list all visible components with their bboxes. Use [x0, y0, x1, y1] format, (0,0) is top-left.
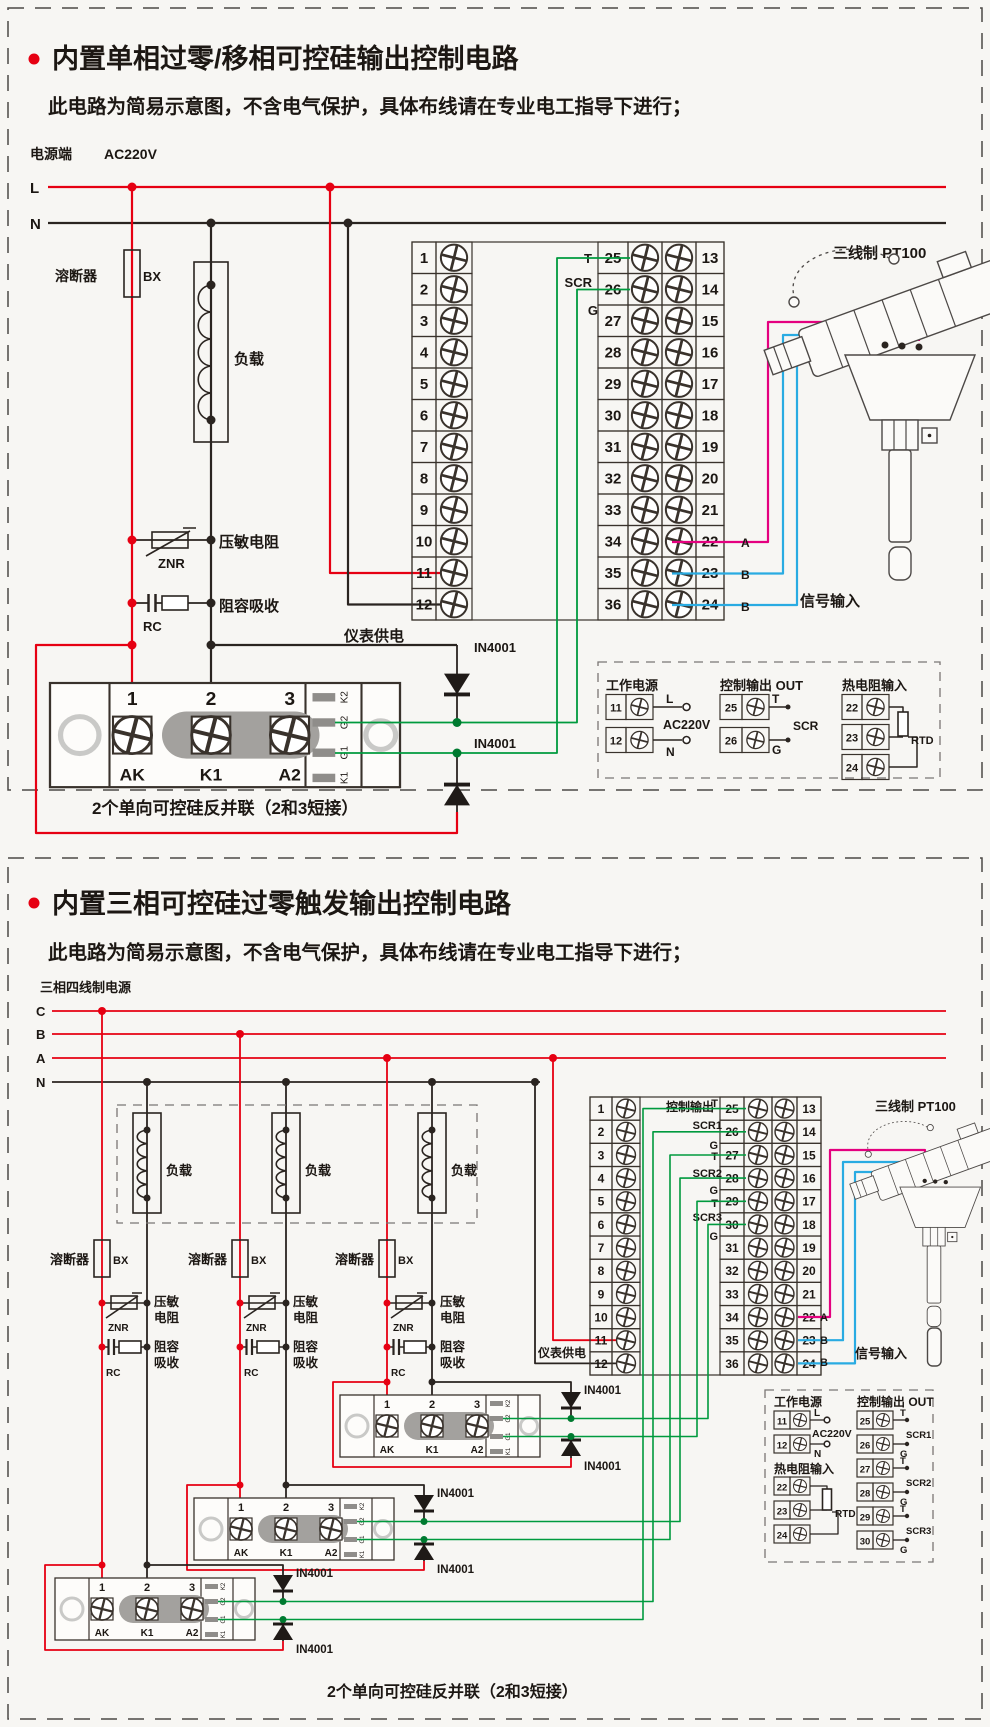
label-g: G [709, 1185, 718, 1197]
label-t: T [711, 1198, 718, 1210]
terminal-number: 13 [702, 250, 719, 267]
legend-scr3: SCR3 [906, 1526, 931, 1537]
signal-input-label: 信号输入 [800, 592, 860, 610]
terminal-number: 31 [725, 1241, 739, 1255]
legend-l: L [814, 1408, 820, 1419]
terminal-row: 5 [590, 1190, 640, 1213]
terminal-row: 15 [696, 305, 724, 337]
signal-b-label: B [741, 568, 750, 582]
legend-voltage: AC220V [812, 1428, 852, 1440]
signal-b-label: B [741, 600, 750, 614]
terminal-row: 4 [412, 337, 472, 369]
legend-box-2: 工作电源 11 12 L AC220V N 热电阻输入 22 23 24 RTD… [765, 1390, 934, 1562]
terminal-number: 5 [420, 376, 428, 393]
terminal-number: 19 [702, 439, 719, 456]
legend-terminal: 24 [846, 763, 859, 775]
legend-terminal: 27 [860, 1465, 871, 1476]
terminal-row: 9 [412, 494, 472, 526]
fuse-3: 溶断器 BX [335, 1240, 414, 1277]
terminal-number: 9 [598, 1287, 605, 1301]
terminal-row: 8 [590, 1259, 640, 1282]
legend-terminal: 11 [777, 1417, 788, 1428]
pt100-label: 三线制 PT100 [875, 1099, 956, 1114]
terminal-number: 20 [702, 471, 719, 488]
varistor-label: 压敏电阻 [219, 533, 279, 551]
ctrl-out-label: 控制输出 [666, 1099, 714, 1114]
znr-code: ZNR [158, 556, 185, 571]
terminal-number: 16 [802, 1172, 816, 1186]
terminal-number: 14 [702, 282, 719, 299]
legend-terminal: 25 [860, 1417, 871, 1428]
terminal-row: 15 [797, 1143, 821, 1166]
terminal-block-2: 1 2 3 4 5 [590, 1097, 821, 1375]
rc-code: RC [106, 1368, 120, 1379]
legend-t: T [900, 1456, 906, 1467]
fuse-label: 溶断器 [50, 1252, 90, 1267]
terminal-number: 18 [702, 408, 719, 425]
load-coil [198, 285, 211, 420]
source-label: 三相四线制电源 [40, 980, 131, 995]
scr-module-a [340, 1395, 540, 1457]
terminal-row: 28 [598, 337, 696, 369]
label-scr1: SCR1 [693, 1120, 722, 1132]
load-1: 负载 [133, 1113, 192, 1213]
bullet-icon [29, 898, 40, 909]
load-label: 负载 [451, 1163, 477, 1178]
terminal-number: 33 [725, 1287, 739, 1301]
terminal-number: 34 [605, 534, 622, 551]
fuse-code: BX [398, 1255, 414, 1267]
terminal-row: 18 [696, 400, 724, 432]
section1-frame [8, 8, 982, 790]
terminal-number: 19 [802, 1241, 816, 1255]
terminal-number: 1 [420, 250, 428, 267]
terminal-row: 2 [412, 274, 472, 306]
terminal-number: 20 [802, 1264, 816, 1278]
varistor-label: 压敏 [440, 1294, 466, 1309]
terminal-row: 21 [797, 1282, 821, 1305]
legend-scr1: SCR1 [906, 1430, 932, 1441]
terminal-row: 12 [412, 589, 472, 621]
legend-g: G [772, 743, 781, 757]
terminal-row: 13 [797, 1097, 821, 1120]
terminal-row: 5 [412, 368, 472, 400]
load-label: 负载 [166, 1163, 192, 1178]
legend-rtd: RTD [911, 735, 934, 747]
legend-n: N [666, 745, 675, 759]
legend-terminal: 23 [777, 1507, 788, 1518]
legend-terminal: 28 [860, 1489, 871, 1500]
fuse-label: 溶断器 [335, 1252, 375, 1267]
terminal-row: 32 [720, 1259, 797, 1282]
diode-label: IN4001 [584, 1461, 622, 1473]
znr-code: ZNR [393, 1323, 414, 1334]
terminal-number: 17 [802, 1195, 816, 1209]
rc-code: RC [244, 1368, 258, 1379]
terminal-row: 9 [590, 1282, 640, 1305]
terminal-number: 4 [420, 345, 429, 362]
line-n-label: N [30, 216, 41, 233]
legend-terminal: 23 [846, 733, 858, 745]
terminal-number: 35 [725, 1334, 739, 1348]
section2: 内置三相可控硅过零触发输出控制电路 此电路为简易示意图，不含电气保护，具体布线请… [29, 888, 990, 1701]
legend-voltage: AC220V [663, 718, 711, 732]
wire-n-to-terminal12 [535, 1082, 622, 1363]
legend-terminal: 25 [725, 703, 737, 715]
bullet-icon [29, 54, 40, 65]
terminal-row: 14 [797, 1120, 821, 1143]
znr-rc-phase2: ZNR 压敏 电阻 RC 阻容 吸收 [240, 1293, 319, 1379]
terminal-number: 6 [598, 1218, 605, 1232]
line-n2-label: N [36, 1075, 45, 1090]
diode-label: IN4001 [584, 1385, 622, 1397]
terminal-number: 36 [605, 597, 622, 614]
terminal-row: 20 [797, 1259, 821, 1282]
label-g: G [588, 303, 598, 318]
diode-label: IN4001 [296, 1644, 334, 1656]
terminal-row: 20 [696, 463, 724, 495]
scr-module-1 [50, 683, 400, 787]
legend-t: T [900, 1408, 906, 1419]
terminal-number: 11 [595, 1334, 608, 1348]
terminal-row: 30 [598, 400, 696, 432]
terminal-row: 16 [696, 337, 724, 369]
terminal-number: 29 [605, 376, 622, 393]
fuse-label: 溶断器 [188, 1252, 228, 1267]
terminal-number: 35 [605, 565, 622, 582]
znr-code: ZNR [108, 1323, 129, 1334]
terminal-block-1: 1 2 3 4 5 [412, 242, 724, 620]
fuse-2: 溶断器 BX [188, 1240, 267, 1277]
fuse-1: 溶断器 BX [50, 1240, 129, 1277]
load-label: 负载 [305, 1163, 331, 1178]
terminal-row: 17 [797, 1190, 821, 1213]
terminal-row: 19 [696, 431, 724, 463]
terminal-number: 30 [605, 408, 622, 425]
line-a-label: A [36, 1051, 46, 1066]
module-caption: 2个单向可控硅反并联（2和3短接） [327, 1682, 578, 1701]
legend-terminal: 22 [846, 703, 858, 715]
terminal-row: 21 [696, 494, 724, 526]
terminal-number: 6 [420, 408, 428, 425]
terminal-row: 17 [696, 368, 724, 400]
terminal-number: 21 [802, 1287, 816, 1301]
legend-terminal: 30 [860, 1537, 871, 1548]
legend-l: L [666, 692, 673, 706]
varistor-label: 电阻 [293, 1310, 319, 1325]
legend-t: T [900, 1504, 906, 1515]
snubber-label: 阻容 [154, 1339, 180, 1354]
legend-box-1: 工作电源 11 12 L AC220V N 控制输出 OUT 25 26 T S… [598, 662, 940, 780]
terminal-number: 18 [802, 1218, 816, 1232]
snubber-label: 吸收 [293, 1355, 319, 1370]
line-c-label: C [36, 1004, 46, 1019]
legend-t: T [772, 692, 780, 706]
terminal-row: 19 [797, 1236, 821, 1259]
terminal-number: 12 [416, 597, 433, 614]
load-3: 负载 [418, 1113, 477, 1213]
terminal-row: 14 [696, 274, 724, 306]
terminal-row: 27 [598, 305, 696, 337]
snubber-label: 吸收 [154, 1355, 180, 1370]
legend-terminal: 12 [777, 1441, 788, 1452]
terminal-number: 27 [605, 313, 622, 330]
pt100-label: 三线制 PT100 [833, 244, 926, 262]
meter-supply-label: 仪表供电 [537, 1345, 586, 1360]
terminal-row: 10 [412, 526, 472, 558]
load-2: 负载 [272, 1113, 331, 1213]
terminal-row: 31 [598, 431, 696, 463]
diode-label: IN4001 [437, 1488, 475, 1500]
fuse-code: BX [143, 269, 161, 284]
terminal-row: 33 [720, 1282, 797, 1305]
terminal-number: 14 [802, 1125, 816, 1139]
voltage-label: AC220V [104, 146, 158, 162]
terminal-row: 36 [720, 1352, 797, 1375]
terminal-number: 32 [605, 471, 622, 488]
terminal-number: 31 [605, 439, 622, 456]
terminal-row: 2 [590, 1120, 640, 1143]
snubber-label: 阻容吸收 [219, 597, 279, 615]
terminal-row: 35 [720, 1329, 797, 1352]
signal-b-label: B [820, 1335, 828, 1347]
terminal-row: 31 [720, 1236, 797, 1259]
terminal-row: 32 [598, 463, 696, 495]
terminal-row: 18 [797, 1213, 821, 1236]
load-label: 负载 [234, 350, 264, 368]
legend-terminal: 12 [610, 736, 622, 748]
snubber-label: 阻容 [440, 1339, 466, 1354]
terminal-number: 4 [598, 1172, 605, 1186]
terminal-number: 1 [598, 1102, 605, 1116]
terminal-row: 33 [598, 494, 696, 526]
legend-terminal: 29 [860, 1513, 871, 1524]
scr-module-b [194, 1498, 394, 1560]
signal-input-label: 信号输入 [855, 1346, 907, 1361]
snubber-resistor [162, 596, 188, 610]
legend-power-title: 工作电源 [606, 678, 658, 693]
terminal-number: 36 [725, 1357, 739, 1371]
terminal-number: 7 [420, 439, 428, 456]
terminal-row: 16 [797, 1167, 821, 1190]
terminal-row: 4 [590, 1167, 640, 1190]
terminal-row: 3 [412, 305, 472, 337]
terminal-row: 13 [696, 242, 724, 274]
legend-terminal: 11 [610, 703, 622, 715]
terminal-number: 15 [802, 1148, 816, 1162]
terminal-row: 7 [590, 1236, 640, 1259]
diagram-canvas: 1 2 3 AK K1 A2 K2 G2 G1 K1 [0, 0, 990, 1727]
legend-g: G [900, 1545, 907, 1556]
diode-label: IN4001 [474, 736, 516, 751]
pt100-probe-extension [928, 1328, 942, 1366]
legend-rtd: RTD [835, 1509, 856, 1520]
line-l-label: L [30, 180, 39, 197]
znr-rc-phase3: ZNR 压敏 电阻 RC 阻容 吸收 [387, 1293, 466, 1379]
section2-subtitle: 此电路为简易示意图，不含电气保护，具体布线请在专业电工指导下进行； [48, 941, 692, 964]
legend-rtd-title: 热电阻输入 [842, 678, 907, 693]
terminal-number: 2 [420, 282, 428, 299]
meter-supply-label: 仪表供电 [343, 627, 404, 645]
module-caption: 2个单向可控硅反并联（2和3短接） [92, 798, 358, 818]
terminal-number: 5 [598, 1195, 605, 1209]
wire-gate-scr26 [335, 290, 630, 723]
terminal-number: 21 [702, 502, 719, 519]
legend-scr: SCR [793, 719, 819, 733]
terminal-number: 33 [605, 502, 622, 519]
varistor-label: 压敏 [293, 1294, 319, 1309]
legend-out-title: 控制输出 OUT [857, 1394, 934, 1409]
snubber-label: 吸收 [440, 1355, 466, 1370]
label-scr: SCR [565, 275, 593, 290]
line-b-label: B [36, 1027, 45, 1042]
fuse-code: BX [113, 1255, 129, 1267]
terminal-number: 13 [802, 1102, 816, 1116]
fuse-label: 溶断器 [55, 268, 98, 284]
diode-label: IN4001 [474, 640, 516, 655]
terminal-number: 15 [702, 313, 719, 330]
terminal-number: 12 [594, 1357, 608, 1371]
terminal-number: 32 [725, 1264, 739, 1278]
terminal-number: 10 [594, 1311, 608, 1325]
terminal-number: 34 [725, 1311, 739, 1325]
terminal-number: 16 [702, 345, 719, 362]
varistor-label: 电阻 [440, 1310, 466, 1325]
fuse-code: BX [251, 1255, 267, 1267]
terminal-number: 7 [598, 1241, 605, 1255]
section1-title: 内置单相过零/移相可控硅输出控制电路 [52, 43, 520, 74]
section2-title: 内置三相可控硅过零触发输出控制电路 [52, 888, 512, 919]
signal-a-label: A [820, 1312, 828, 1324]
legend-terminal: 26 [860, 1441, 871, 1452]
varistor-label: 压敏 [154, 1294, 180, 1309]
terminal-row: 6 [590, 1213, 640, 1236]
terminal-row: 1 [412, 242, 472, 274]
terminal-number: 3 [420, 313, 428, 330]
terminal-number: 11 [416, 565, 432, 582]
terminal-row: 7 [412, 431, 472, 463]
wiring-diagram-page: 1 2 3 AK K1 A2 K2 G2 G1 K1 [0, 0, 990, 1727]
section1-subtitle: 此电路为简易示意图，不含电气保护，具体布线请在专业电工指导下进行； [48, 95, 692, 118]
terminal-row: 11 [412, 557, 472, 589]
terminal-row: 3 [590, 1143, 640, 1166]
label-t: T [711, 1151, 718, 1163]
rc-code: RC [143, 619, 162, 634]
terminal-number: 28 [605, 345, 622, 362]
legend-terminal: 24 [777, 1531, 788, 1542]
power-side-label: 电源端 [30, 146, 72, 162]
section1: 内置单相过零/移相可控硅输出控制电路 此电路为简易示意图，不含电气保护，具体布线… [29, 43, 990, 833]
znr-rc-phase1: ZNR 压敏 电阻 RC 阻容 吸收 [102, 1293, 180, 1379]
legend-scr2: SCR2 [906, 1478, 931, 1489]
terminal-row: 1 [590, 1097, 640, 1120]
terminal-row: 34 [720, 1306, 797, 1329]
terminal-row: 29 [598, 368, 696, 400]
snubber-label: 阻容 [293, 1339, 319, 1354]
wire-gate-t25 [335, 258, 630, 753]
scr-module-c [55, 1578, 255, 1640]
terminal-number: 10 [416, 534, 433, 551]
terminal-number: 17 [702, 376, 719, 393]
terminal-row: 8 [412, 463, 472, 495]
terminal-number: 8 [598, 1264, 605, 1278]
terminal-number: 9 [420, 502, 428, 519]
varistor-label: 电阻 [154, 1310, 180, 1325]
znr-code: ZNR [246, 1323, 267, 1334]
diode-label: IN4001 [296, 1568, 334, 1580]
terminal-number: 8 [420, 471, 428, 488]
terminal-number: 3 [598, 1148, 605, 1162]
label-g: G [709, 1231, 718, 1243]
legend-terminal: 22 [777, 1483, 788, 1494]
terminal-number: 2 [598, 1125, 605, 1139]
legend-power-title: 工作电源 [774, 1394, 822, 1409]
legend-n: N [814, 1449, 821, 1460]
rc-code: RC [391, 1368, 405, 1379]
diode-label: IN4001 [437, 1564, 475, 1576]
legend-out-title: 控制输出 OUT [720, 678, 803, 693]
legend-terminal: 26 [725, 736, 737, 748]
legend-rtd-title: 热电阻输入 [774, 1461, 834, 1476]
signal-a-label: A [741, 536, 750, 550]
terminal-row: 10 [590, 1306, 640, 1329]
signal-b-label: B [820, 1357, 828, 1369]
terminal-row: 6 [412, 400, 472, 432]
